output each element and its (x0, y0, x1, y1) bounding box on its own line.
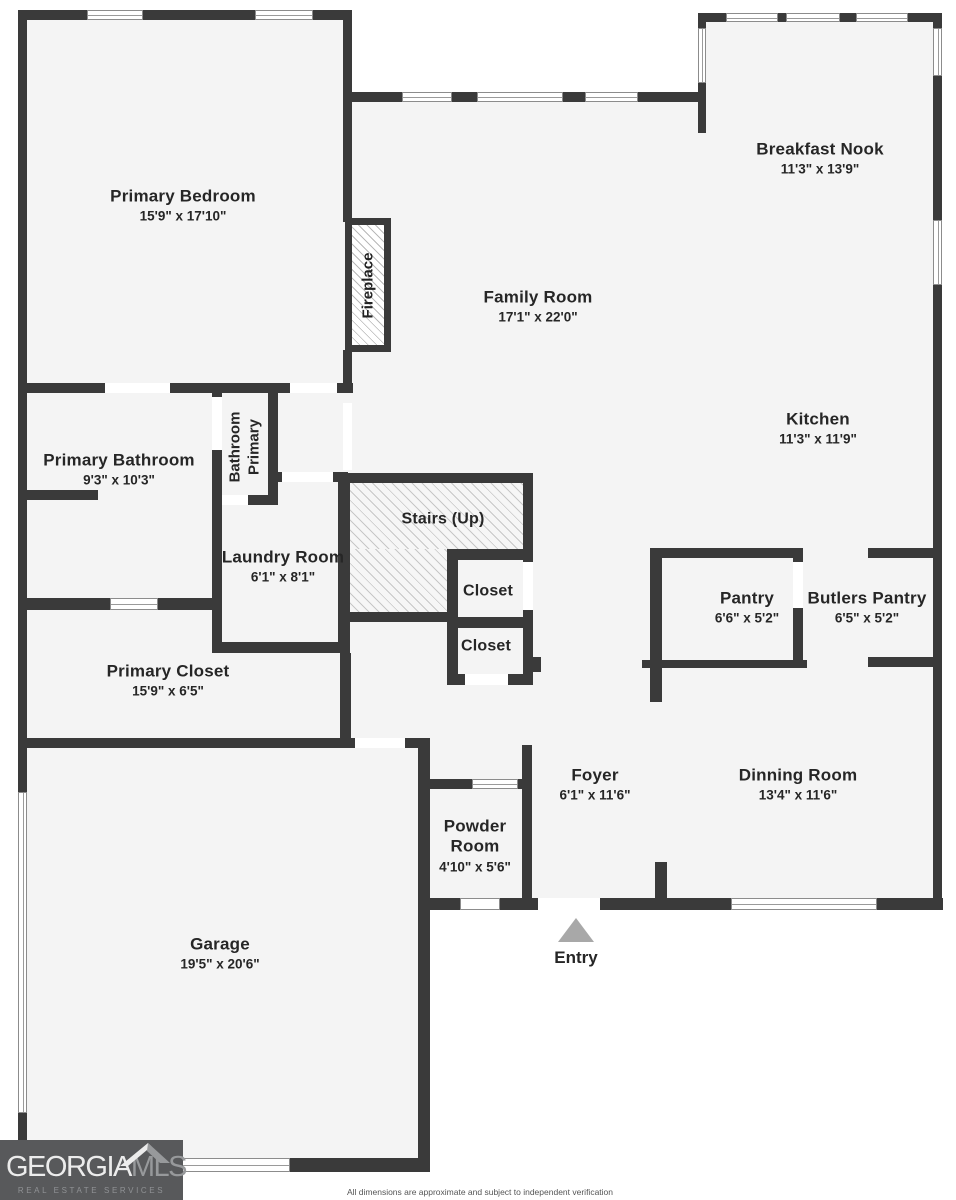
window (472, 779, 518, 789)
window (255, 10, 313, 20)
room-dims: 11'3" x 11'9" (779, 432, 857, 448)
door-opening (793, 562, 803, 608)
window (585, 92, 638, 102)
wall (868, 548, 940, 558)
door-opening (465, 674, 508, 685)
room-name: Closet (461, 636, 511, 655)
entry-label: Entry (554, 948, 597, 968)
fireplace: Fireplace (345, 218, 391, 352)
room-label-closet-lower: Closet (461, 636, 511, 655)
window (698, 28, 706, 83)
room-name: Room (439, 837, 511, 857)
door-opening (222, 495, 248, 505)
room-dims: 15'9" x 17'10" (110, 209, 256, 225)
fireplace-label: Fireplace (360, 252, 377, 318)
door-opening (343, 403, 352, 470)
door-opening (282, 472, 333, 482)
georgia-mls-logo: GEORGIAMLS REAL ESTATE SERVICES (0, 1140, 183, 1200)
wall (343, 10, 352, 222)
room-dims: 6'5" x 5'2" (807, 611, 926, 627)
floor-area (702, 17, 937, 97)
entry-arrow-icon (558, 918, 594, 942)
window (786, 13, 840, 22)
wall (345, 473, 533, 483)
window (110, 598, 158, 610)
wall (345, 612, 447, 622)
room-name: Dinning Room (739, 766, 858, 786)
room-label-family-room: Family Room 17'1" x 22'0" (484, 288, 593, 327)
room-name: Stairs (Up) (401, 509, 484, 528)
room-label-primary-bedroom: Primary Bedroom 15'9" x 17'10" (110, 187, 256, 226)
room-name: Laundry Room (222, 548, 344, 568)
room-label-closet-upper: Closet (463, 581, 513, 600)
wall (650, 548, 803, 558)
room-label-breakfast-nook: Breakfast Nook 11'3" x 13'9" (756, 140, 884, 179)
window (477, 92, 563, 102)
room-dims: 19'5" x 20'6" (180, 957, 259, 973)
disclaimer-text: All dimensions are approximate and subje… (347, 1187, 613, 1197)
wall (418, 738, 430, 1172)
room-name: Breakfast Nook (756, 140, 884, 160)
room-dims: 9'3" x 10'3" (43, 473, 195, 489)
room-dims: 15'9" x 6'5" (107, 684, 230, 700)
room-label-garage: Garage 19'5" x 20'6" (180, 935, 259, 974)
room-name: Garage (180, 935, 259, 955)
room-name: Primary Closet (107, 662, 230, 682)
wall (447, 549, 533, 560)
room-label-stairs: Stairs (Up) (401, 509, 484, 528)
wall (340, 653, 351, 748)
stairs-hatch (350, 549, 447, 612)
door-opening (105, 383, 170, 393)
door-opening (523, 562, 533, 610)
room-dims: 11'3" x 13'9" (756, 162, 884, 178)
window (856, 13, 908, 22)
window (726, 13, 778, 22)
room-label-primary-bathroom-closet: Bathroom Primary (226, 412, 264, 483)
room-name: Pantry (715, 589, 779, 609)
window (933, 220, 942, 285)
window (731, 898, 877, 910)
window (87, 10, 143, 20)
room-label-foyer: Foyer 6'1" x 11'6" (559, 766, 630, 805)
room-label-butlers-pantry: Butlers Pantry 6'5" x 5'2" (807, 589, 926, 628)
room-label-kitchen: Kitchen 11'3" x 11'9" (779, 410, 857, 449)
room-dims: 13'4" x 11'6" (739, 788, 858, 804)
floor-plan: Fireplace Primary Bedroom 15'9" x 17'10"… (0, 0, 956, 1200)
room-name: Foyer (559, 766, 630, 786)
wall (868, 657, 940, 667)
window (18, 792, 27, 1113)
room-name: Closet (463, 581, 513, 600)
roof-icon (118, 1141, 172, 1167)
wall (650, 548, 662, 702)
room-label-primary-bathroom: Primary Bathroom 9'3" x 10'3" (43, 451, 195, 490)
room-label-dinning-room: Dinning Room 13'4" x 11'6" (739, 766, 858, 805)
wall (268, 388, 278, 505)
door (460, 898, 500, 910)
window (402, 92, 452, 102)
wall (212, 642, 350, 653)
room-name: Primary Bathroom (43, 451, 195, 471)
wall (18, 490, 98, 500)
room-label-laundry-room: Laundry Room 6'1" x 8'1" (222, 548, 344, 587)
wall (447, 617, 533, 628)
wall (523, 473, 533, 559)
room-name-line: Bathroom (226, 412, 245, 483)
room-label-pantry: Pantry 6'6" x 5'2" (715, 589, 779, 628)
room-dims: 6'1" x 11'6" (559, 788, 630, 804)
door-opening (290, 383, 337, 393)
room-name-line: Primary (245, 412, 264, 483)
wall (212, 495, 222, 653)
room-label-primary-closet: Primary Closet 15'9" x 6'5" (107, 662, 230, 701)
wall (447, 549, 458, 685)
door-opening (355, 738, 405, 748)
wall (933, 13, 942, 910)
room-name: Butlers Pantry (807, 589, 926, 609)
room-name: Primary Bedroom (110, 187, 256, 207)
logo-tagline: REAL ESTATE SERVICES (18, 1186, 165, 1195)
room-dims: 17'1" x 22'0" (484, 310, 593, 326)
logo-text-georgia: GEORGIA (6, 1151, 131, 1183)
door-opening (212, 397, 222, 450)
room-name: Kitchen (779, 410, 857, 430)
wall (642, 660, 807, 668)
room-dims: 6'6" x 5'2" (715, 611, 779, 627)
room-dims: 4'10" x 5'6" (439, 859, 511, 875)
door-opening (538, 898, 600, 910)
wall (343, 350, 352, 393)
wall (522, 745, 532, 910)
room-dims: 6'1" x 8'1" (222, 570, 344, 586)
room-label-powder-room: Powder Room 4'10" x 5'6" (439, 817, 511, 876)
room-name: Powder (439, 817, 511, 837)
room-name: Family Room (484, 288, 593, 308)
window (933, 28, 942, 76)
